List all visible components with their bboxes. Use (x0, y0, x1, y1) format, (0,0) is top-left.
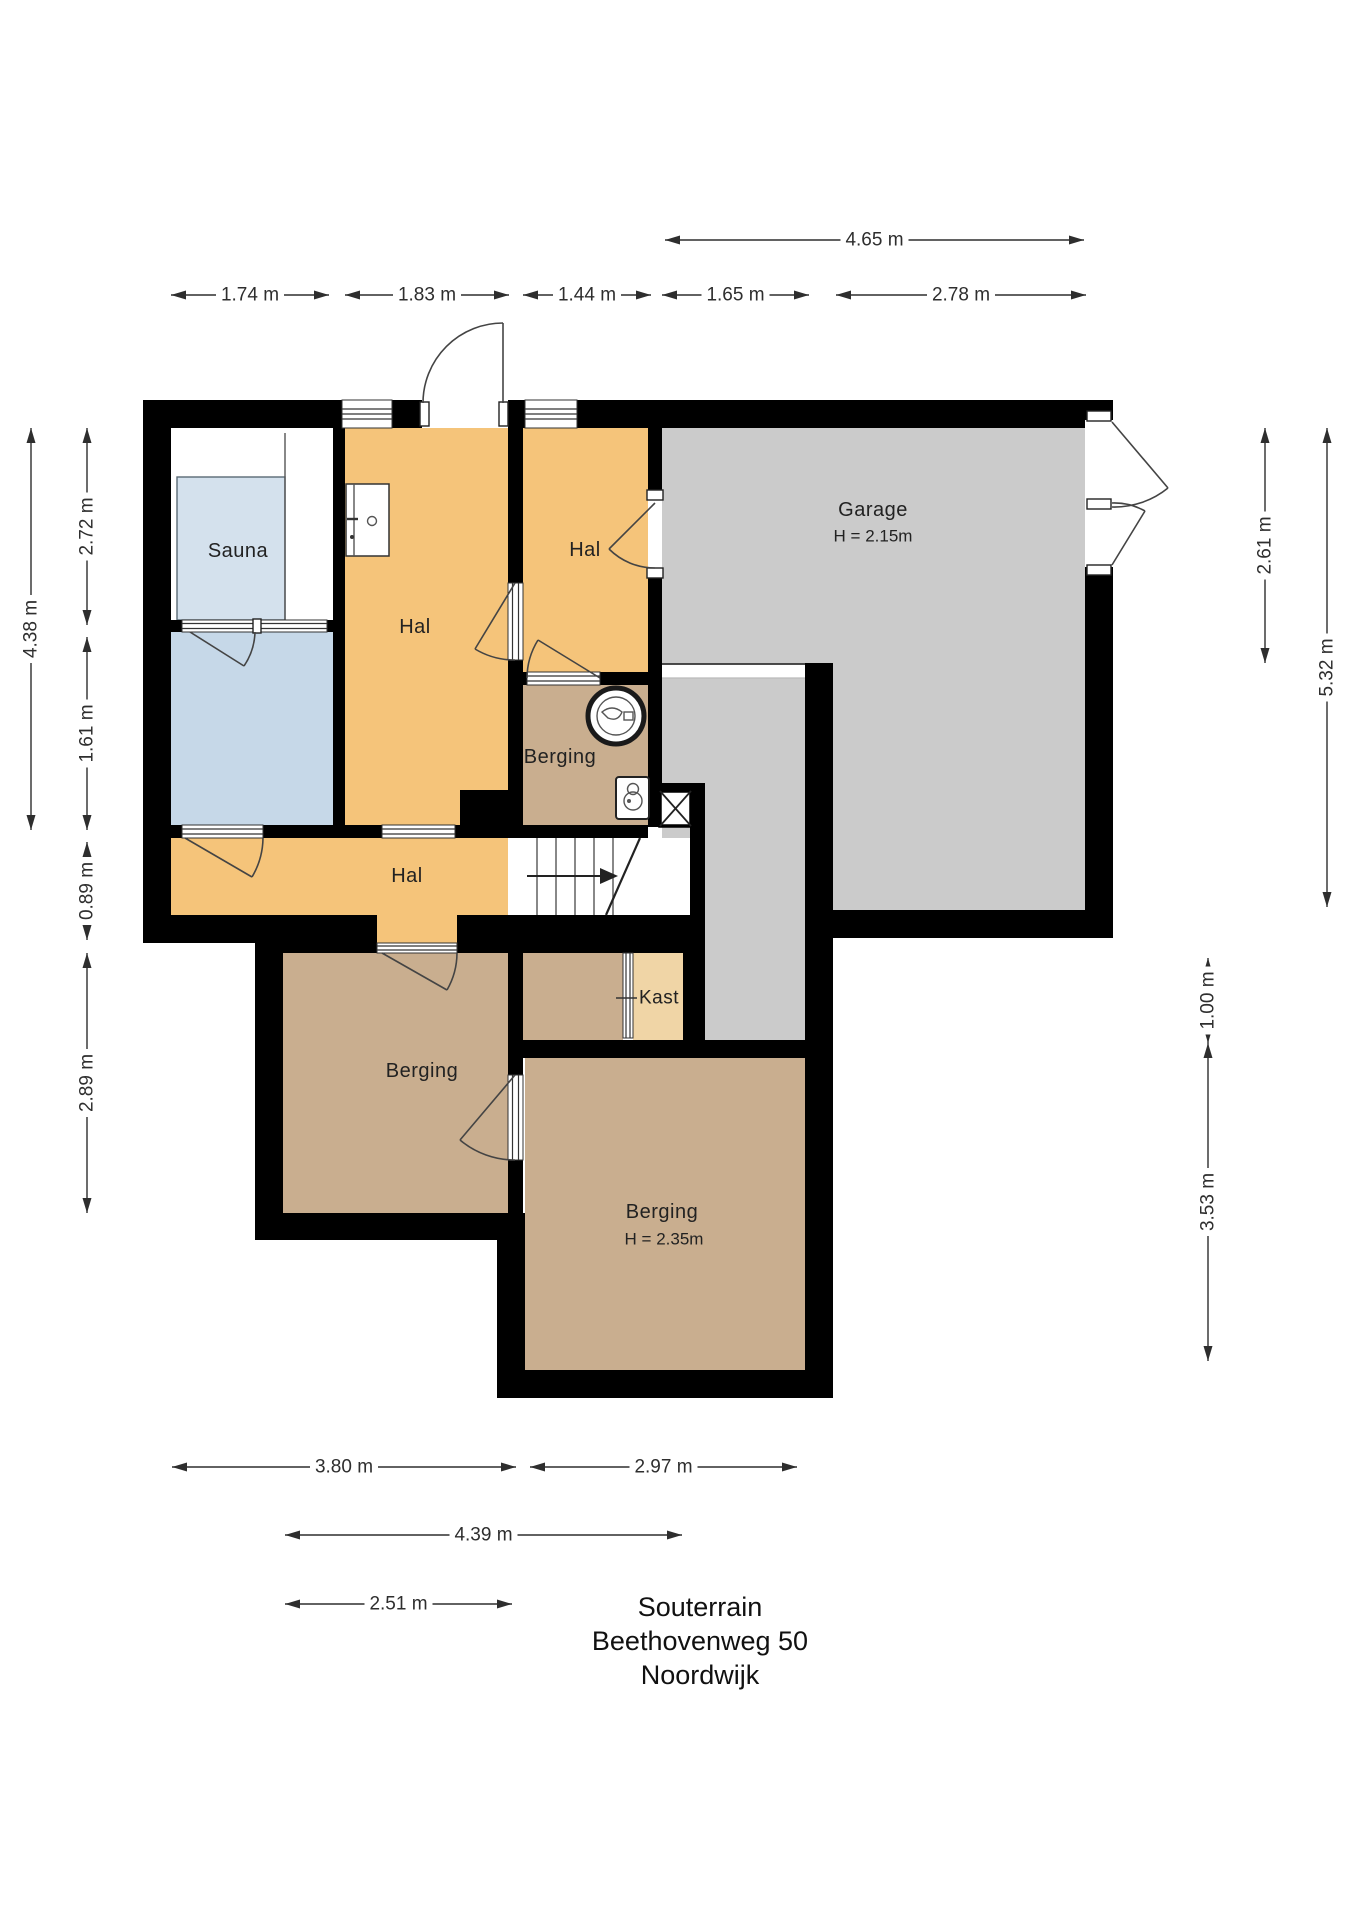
dimension-4-39-: 4.39 m (285, 1524, 682, 1546)
dimension-2-51-: 2.51 m (285, 1593, 512, 1615)
dimension-arrowhead-icon (667, 1531, 682, 1540)
wall-under-stairs (457, 915, 705, 953)
dimension-1-61-: 1.61 m (76, 637, 98, 830)
title-block: Souterrain Beethovenweg 50 Noordwijk (592, 1592, 808, 1690)
dimension-arrowhead-icon (1204, 1043, 1213, 1058)
dimension-arrowhead-icon (1204, 1346, 1213, 1361)
entry-door-opening (422, 400, 508, 428)
sauna-glazed-door (182, 619, 327, 633)
shaft-cross-icon (660, 791, 691, 826)
dimension-label: 1.61 m (77, 704, 98, 762)
garage-door-leaves-icon (1112, 422, 1168, 565)
dimension-arrowhead-icon (83, 428, 92, 443)
dimension-arrowhead-icon (83, 815, 92, 830)
wall-left (143, 400, 171, 943)
door-jamb (420, 402, 429, 426)
dimension-1-00-: 1.00 m (1197, 958, 1219, 1043)
dimension-1-74-: 1.74 m (171, 284, 329, 306)
door-arc-icon (423, 323, 503, 403)
dimension-label: 1.74 m (221, 285, 279, 306)
wall-storage-ll-left (255, 915, 283, 1240)
dimension-label: 4.39 m (454, 1525, 512, 1546)
label-storage-lower-left: Berging (386, 1060, 458, 1082)
floorplan-page: Sauna Hal Hal Hal Garage H = 2.15m Bergi… (0, 0, 1358, 1920)
dimension-arrowhead-icon (285, 1531, 300, 1540)
dimension-arrowhead-icon (523, 291, 538, 300)
dimension-label: 2.72 m (77, 497, 98, 555)
floorplan-drawing: Sauna Hal Hal Hal Garage H = 2.15m Bergi… (0, 0, 1358, 1920)
door-jamb (1087, 565, 1111, 575)
dimension-arrowhead-icon (1323, 892, 1332, 907)
dimension-arrowhead-icon (83, 637, 92, 652)
label-sauna: Sauna (208, 540, 269, 562)
dimension-arrowhead-icon (1261, 648, 1270, 663)
dimension-arrowhead-icon (285, 1600, 300, 1609)
dimension-arrowhead-icon (1323, 428, 1332, 443)
room-hall-lower-bay (377, 915, 457, 943)
garage-door-opening (1085, 420, 1113, 567)
dimension-label: 1.65 m (706, 285, 764, 306)
wall-halls-divider-mid (508, 660, 523, 838)
dimension-arrowhead-icon (530, 1463, 545, 1472)
dimension-arrowhead-icon (836, 291, 851, 300)
dimension-0-89-: 0.89 m (76, 842, 98, 940)
dimension-arrowhead-icon (665, 236, 680, 245)
dimension-3-80-: 3.80 m (172, 1456, 516, 1478)
wall-closet-right (683, 953, 705, 1048)
label-closet: Kast (639, 988, 679, 1009)
dimension-arrowhead-icon (27, 815, 36, 830)
wall-garage-bottom (805, 910, 1113, 938)
dimension-label: 0.89 m (77, 862, 98, 920)
dimension-4-65-: 4.65 m (665, 229, 1084, 251)
door-opening (648, 500, 662, 568)
door-jamb (499, 402, 508, 426)
dimension-arrowhead-icon (1261, 428, 1270, 443)
dimension-arrowhead-icon (83, 925, 92, 940)
garage-threshold (662, 664, 805, 678)
closet-glass-partition (623, 953, 633, 1038)
door-jamb (1087, 411, 1111, 421)
dimension-arrowhead-icon (345, 291, 360, 300)
dimension-label: 3.80 m (315, 1457, 373, 1478)
dimension-arrowhead-icon (27, 428, 36, 443)
wall-halls-divider-top (508, 428, 523, 583)
title-floor: Souterrain (638, 1592, 763, 1622)
room-storage-lower-left (283, 953, 508, 1213)
dimension-1-44-: 1.44 m (523, 284, 651, 306)
wall-sauna-hall (333, 428, 345, 825)
dimension-arrowhead-icon (794, 291, 809, 300)
glazed-door (527, 672, 600, 685)
wall-storage-lr-right (805, 1040, 833, 1398)
glazed-door (508, 1075, 523, 1160)
boiler-icon (616, 777, 649, 819)
dimension-3-53-: 3.53 m (1197, 1043, 1219, 1361)
dimension-label: 2.51 m (369, 1594, 427, 1615)
dimension-label: 1.00 m (1198, 971, 1219, 1029)
dimension-label: 1.44 m (558, 285, 616, 306)
dimension-arrowhead-icon (1071, 291, 1086, 300)
label-storage-lower-right: Berging (626, 1201, 698, 1223)
dimension-4-38-: 4.38 m (20, 428, 42, 830)
dimension-arrowhead-icon (314, 291, 329, 300)
title-city: Noordwijk (641, 1660, 760, 1690)
label-garage-height: H = 2.15m (834, 527, 913, 546)
dimension-1-65-: 1.65 m (662, 284, 809, 306)
dimension-arrowhead-icon (662, 291, 677, 300)
glazed-door (182, 825, 263, 838)
washing-machine-icon (588, 688, 644, 744)
dimension-2-89-: 2.89 m (76, 953, 98, 1213)
dimension-arrowhead-icon (171, 291, 186, 300)
glazed-door (508, 583, 523, 660)
wall-storage-lr-bottom (497, 1370, 833, 1398)
washbasin-icon (346, 484, 389, 556)
room-bath (171, 632, 333, 825)
dimension-label: 2.89 m (77, 1054, 98, 1112)
dimension-label: 1.83 m (398, 285, 456, 306)
title-address: Beethovenweg 50 (592, 1626, 808, 1656)
wall-storage-ll-bottom (255, 1213, 510, 1240)
glazed-door (382, 825, 455, 838)
corridor-lower (705, 953, 805, 1040)
dimension-arrowhead-icon (501, 1463, 516, 1472)
dimension-arrowhead-icon (83, 953, 92, 968)
understairs-alcove (523, 953, 623, 1048)
wall-garage-right-lower (1085, 567, 1113, 938)
label-hall-upper-right: Hal (569, 539, 601, 561)
dimension-arrowhead-icon (83, 1198, 92, 1213)
label-hall-lower: Hal (391, 865, 423, 887)
dimension-arrowhead-icon (636, 291, 651, 300)
dimension-label: 3.53 m (1198, 1173, 1219, 1231)
dimension-arrowhead-icon (1069, 236, 1084, 245)
wall-top (143, 400, 1113, 428)
dimension-arrowhead-icon (494, 291, 509, 300)
door-jamb (647, 490, 663, 500)
dimension-label: 4.65 m (845, 230, 903, 251)
label-storage-lower-right-height: H = 2.35m (625, 1230, 704, 1249)
dimension-2-78-: 2.78 m (836, 284, 1086, 306)
dimension-2-97-: 2.97 m (530, 1456, 797, 1478)
label-hall-main: Hal (399, 616, 431, 638)
dimension-arrowhead-icon (497, 1600, 512, 1609)
glazed-door (377, 943, 457, 953)
dimension-5-32-: 5.32 m (1316, 428, 1338, 907)
dimension-arrowhead-icon (83, 842, 92, 857)
room-hall-lower (171, 838, 508, 915)
door-jamb (647, 568, 663, 578)
window-icon (342, 400, 392, 428)
wall-storage-mid-bottom (517, 825, 648, 838)
label-storage-middle: Berging (524, 746, 596, 768)
dimension-arrowhead-icon (782, 1463, 797, 1472)
door-jamb (1087, 499, 1111, 509)
dimension-arrowhead-icon (172, 1463, 187, 1472)
wall-corridor-right (805, 663, 833, 1048)
dimension-arrowhead-icon (83, 610, 92, 625)
dimension-1-83-: 1.83 m (345, 284, 509, 306)
window-icon (525, 400, 577, 428)
dimension-2-61-: 2.61 m (1254, 428, 1276, 663)
dimension-label: 5.32 m (1317, 638, 1338, 696)
wall-hall2-garage (648, 428, 662, 790)
wall-storage-lr-top (523, 1040, 805, 1058)
dimension-label: 2.78 m (932, 285, 990, 306)
label-garage: Garage (838, 499, 908, 521)
dimension-label: 2.97 m (634, 1457, 692, 1478)
dimension-label: 4.38 m (21, 600, 42, 658)
dimension-2-72-: 2.72 m (76, 428, 98, 625)
dimension-label: 2.61 m (1255, 516, 1276, 574)
